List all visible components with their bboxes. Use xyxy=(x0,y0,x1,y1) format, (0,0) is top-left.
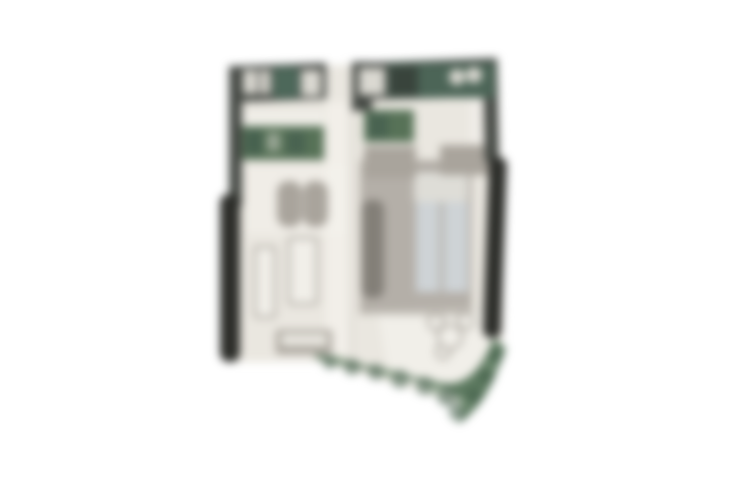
kitchen-countertop xyxy=(240,112,324,128)
kitchen-sink-unit xyxy=(287,132,305,154)
shrub-highlight xyxy=(430,383,442,395)
side-table xyxy=(255,247,275,317)
kitchen-hob xyxy=(267,133,280,151)
sofa-bench-cushion xyxy=(281,334,327,346)
shrub-highlight xyxy=(485,361,495,371)
armchair-right xyxy=(303,181,328,227)
shrub xyxy=(391,370,409,388)
shrub-highlight xyxy=(335,356,345,366)
coffee-table xyxy=(289,238,317,304)
balcony-wall-left xyxy=(220,194,240,362)
floor-plan-page xyxy=(0,0,750,500)
kitchen-appliance xyxy=(246,130,262,154)
floor-plan xyxy=(220,58,507,424)
interior-divider-line xyxy=(350,102,353,358)
left-wall xyxy=(229,66,242,206)
sink-2 xyxy=(466,67,482,83)
wall-counter xyxy=(362,200,384,298)
shower xyxy=(359,68,385,95)
wardrobe-door xyxy=(368,114,388,138)
bistro-table xyxy=(438,325,462,349)
bed-duvet-split xyxy=(439,202,444,292)
vanity-cabinet xyxy=(390,66,418,96)
shrub-highlight xyxy=(458,398,470,410)
dresser-left xyxy=(364,146,416,178)
bistro-chair-2 xyxy=(458,313,474,329)
armchair-left xyxy=(277,181,302,227)
bed-pillows xyxy=(414,172,468,202)
shrub xyxy=(479,368,495,384)
shrub xyxy=(344,359,360,375)
toilet xyxy=(301,70,321,96)
shrub xyxy=(323,355,337,369)
shrub-highlight xyxy=(383,368,393,378)
sink-1 xyxy=(449,69,465,85)
laundry-unit-2 xyxy=(259,70,271,94)
floor-plan-image xyxy=(0,0,750,500)
shrub xyxy=(368,364,384,380)
shrub xyxy=(489,349,503,363)
laundry-unit-1 xyxy=(243,70,257,94)
green-cabinet xyxy=(273,67,299,98)
